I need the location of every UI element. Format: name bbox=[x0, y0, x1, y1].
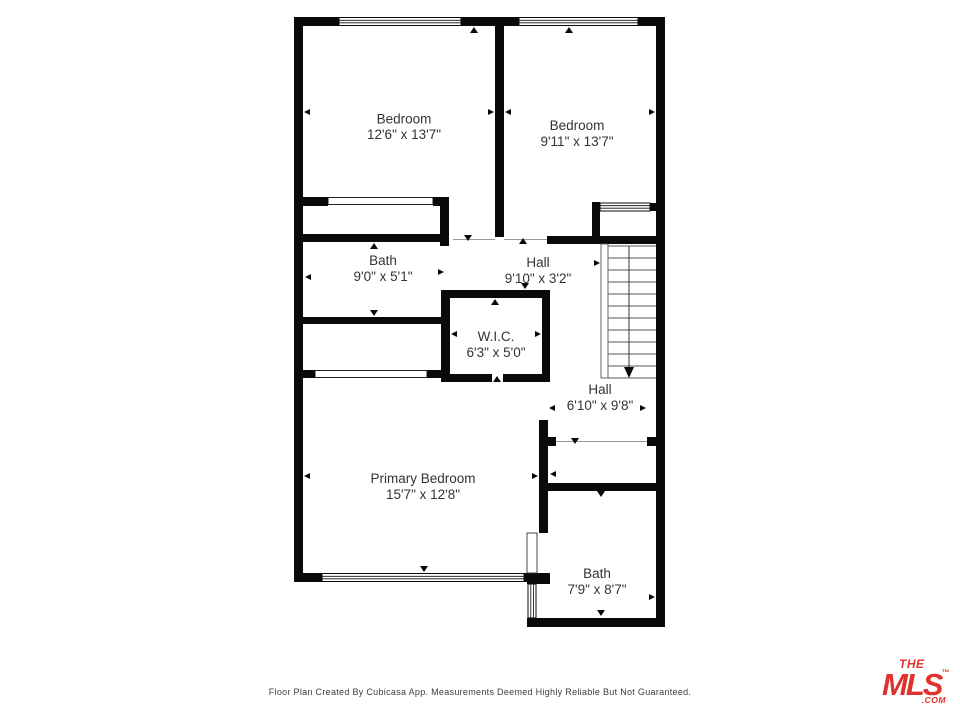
walls bbox=[294, 17, 665, 627]
wall-wic-right bbox=[542, 290, 550, 382]
marker bbox=[464, 235, 472, 241]
stair-stringer bbox=[601, 244, 608, 378]
window-primary-bottom bbox=[322, 574, 524, 582]
wall-wic-bottom-right bbox=[503, 374, 550, 382]
sliding-closet-primary bbox=[315, 371, 427, 378]
wall-outer-right bbox=[656, 17, 665, 627]
door-leaf-bath2 bbox=[527, 533, 537, 573]
marker bbox=[304, 109, 310, 115]
room-label-primary-name: Primary Bedroom bbox=[370, 471, 475, 486]
wall-closet2-stub-left bbox=[294, 370, 315, 378]
window-bedroom1-top bbox=[339, 18, 461, 26]
marker bbox=[649, 594, 655, 600]
marker bbox=[597, 491, 605, 497]
wall-outer-left bbox=[294, 17, 303, 582]
room-label-wic-dims: 6'3" x 5'0" bbox=[466, 345, 525, 360]
marker bbox=[488, 109, 494, 115]
marker bbox=[438, 269, 444, 275]
room-label-bath2-name: Bath bbox=[583, 566, 611, 581]
marker bbox=[305, 274, 311, 280]
wall-alcove-window-cap bbox=[650, 203, 656, 211]
marker bbox=[649, 109, 655, 115]
room-labels: Bedroom 12'6" x 13'7" Bedroom 9'11" x 13… bbox=[353, 112, 633, 598]
window-bedroom2-top bbox=[519, 18, 638, 26]
wall-bath1-top bbox=[294, 234, 441, 242]
room-label-hall1-name: Hall bbox=[526, 255, 549, 270]
themls-logo: THE MLS™ .COM bbox=[882, 658, 950, 705]
room-label-primary-dims: 15'7" x 12'8" bbox=[386, 487, 460, 502]
wall-closet1-stub-left bbox=[294, 197, 328, 206]
wall-wic-left bbox=[441, 290, 450, 378]
marker bbox=[519, 238, 527, 244]
marker bbox=[549, 405, 555, 411]
logo-trademark: ™ bbox=[941, 668, 949, 677]
marker bbox=[451, 331, 457, 337]
window-bath2-left bbox=[528, 584, 536, 618]
wall-bath1-right-stub bbox=[440, 198, 449, 246]
marker bbox=[532, 473, 538, 479]
room-label-hall1-dims: 9'10" x 3'2" bbox=[505, 271, 572, 286]
floor-plan-drawing: Bedroom 12'6" x 13'7" Bedroom 9'11" x 13… bbox=[0, 0, 960, 720]
marker bbox=[491, 299, 499, 305]
wall-hall2-left bbox=[539, 420, 548, 533]
room-label-bedroom1-name: Bedroom bbox=[377, 112, 432, 127]
stair-treads bbox=[608, 246, 656, 378]
marker bbox=[370, 243, 378, 249]
marker bbox=[304, 473, 310, 479]
room-label-bath1-dims: 9'0" x 5'1" bbox=[353, 269, 412, 284]
marker bbox=[493, 376, 501, 382]
wall-hall-bath-separator bbox=[545, 483, 665, 491]
marker bbox=[640, 405, 646, 411]
staircase bbox=[601, 244, 656, 378]
stair-down-arrow bbox=[624, 367, 634, 378]
wall-corner-block bbox=[527, 573, 550, 584]
wall-wic-top bbox=[441, 290, 550, 298]
room-label-bedroom2-name: Bedroom bbox=[550, 118, 605, 133]
room-label-hall2-name: Hall bbox=[588, 382, 611, 397]
wall-bath1-bottom bbox=[294, 317, 448, 324]
wall-bedroom2-bottom bbox=[547, 236, 665, 244]
wall-stair-alcove-left bbox=[592, 202, 600, 244]
marker bbox=[370, 310, 378, 316]
marker bbox=[594, 260, 600, 266]
marker bbox=[535, 331, 541, 337]
footer-disclaimer: Floor Plan Created By Cubicasa App. Meas… bbox=[0, 687, 960, 697]
wall-bath2-bottom bbox=[527, 618, 665, 627]
wall-cased-stub-right bbox=[647, 437, 658, 446]
room-label-bedroom1-dims: 12'6" x 13'7" bbox=[367, 127, 441, 142]
window-stair-alcove bbox=[600, 203, 650, 211]
marker bbox=[550, 471, 556, 477]
marker bbox=[597, 610, 605, 616]
room-label-bath2-dims: 7'9" x 8'7" bbox=[567, 582, 626, 597]
floor-plan-page: { "plan": { "rooms": [ {"name": "Bedroom… bbox=[0, 0, 960, 720]
marker bbox=[565, 27, 573, 33]
wall-bedroom-divider bbox=[495, 17, 504, 237]
wall-cased-stub-left bbox=[545, 437, 556, 446]
marker bbox=[420, 566, 428, 572]
room-label-bath1-name: Bath bbox=[369, 253, 397, 268]
room-label-wic-name: W.I.C. bbox=[478, 329, 515, 344]
sliding-closet-bedroom1 bbox=[328, 198, 433, 205]
room-label-bedroom2-dims: 9'11" x 13'7" bbox=[540, 134, 613, 149]
marker bbox=[470, 27, 478, 33]
room-label-hall2-dims: 6'10" x 9'8" bbox=[567, 398, 634, 413]
marker bbox=[505, 109, 511, 115]
